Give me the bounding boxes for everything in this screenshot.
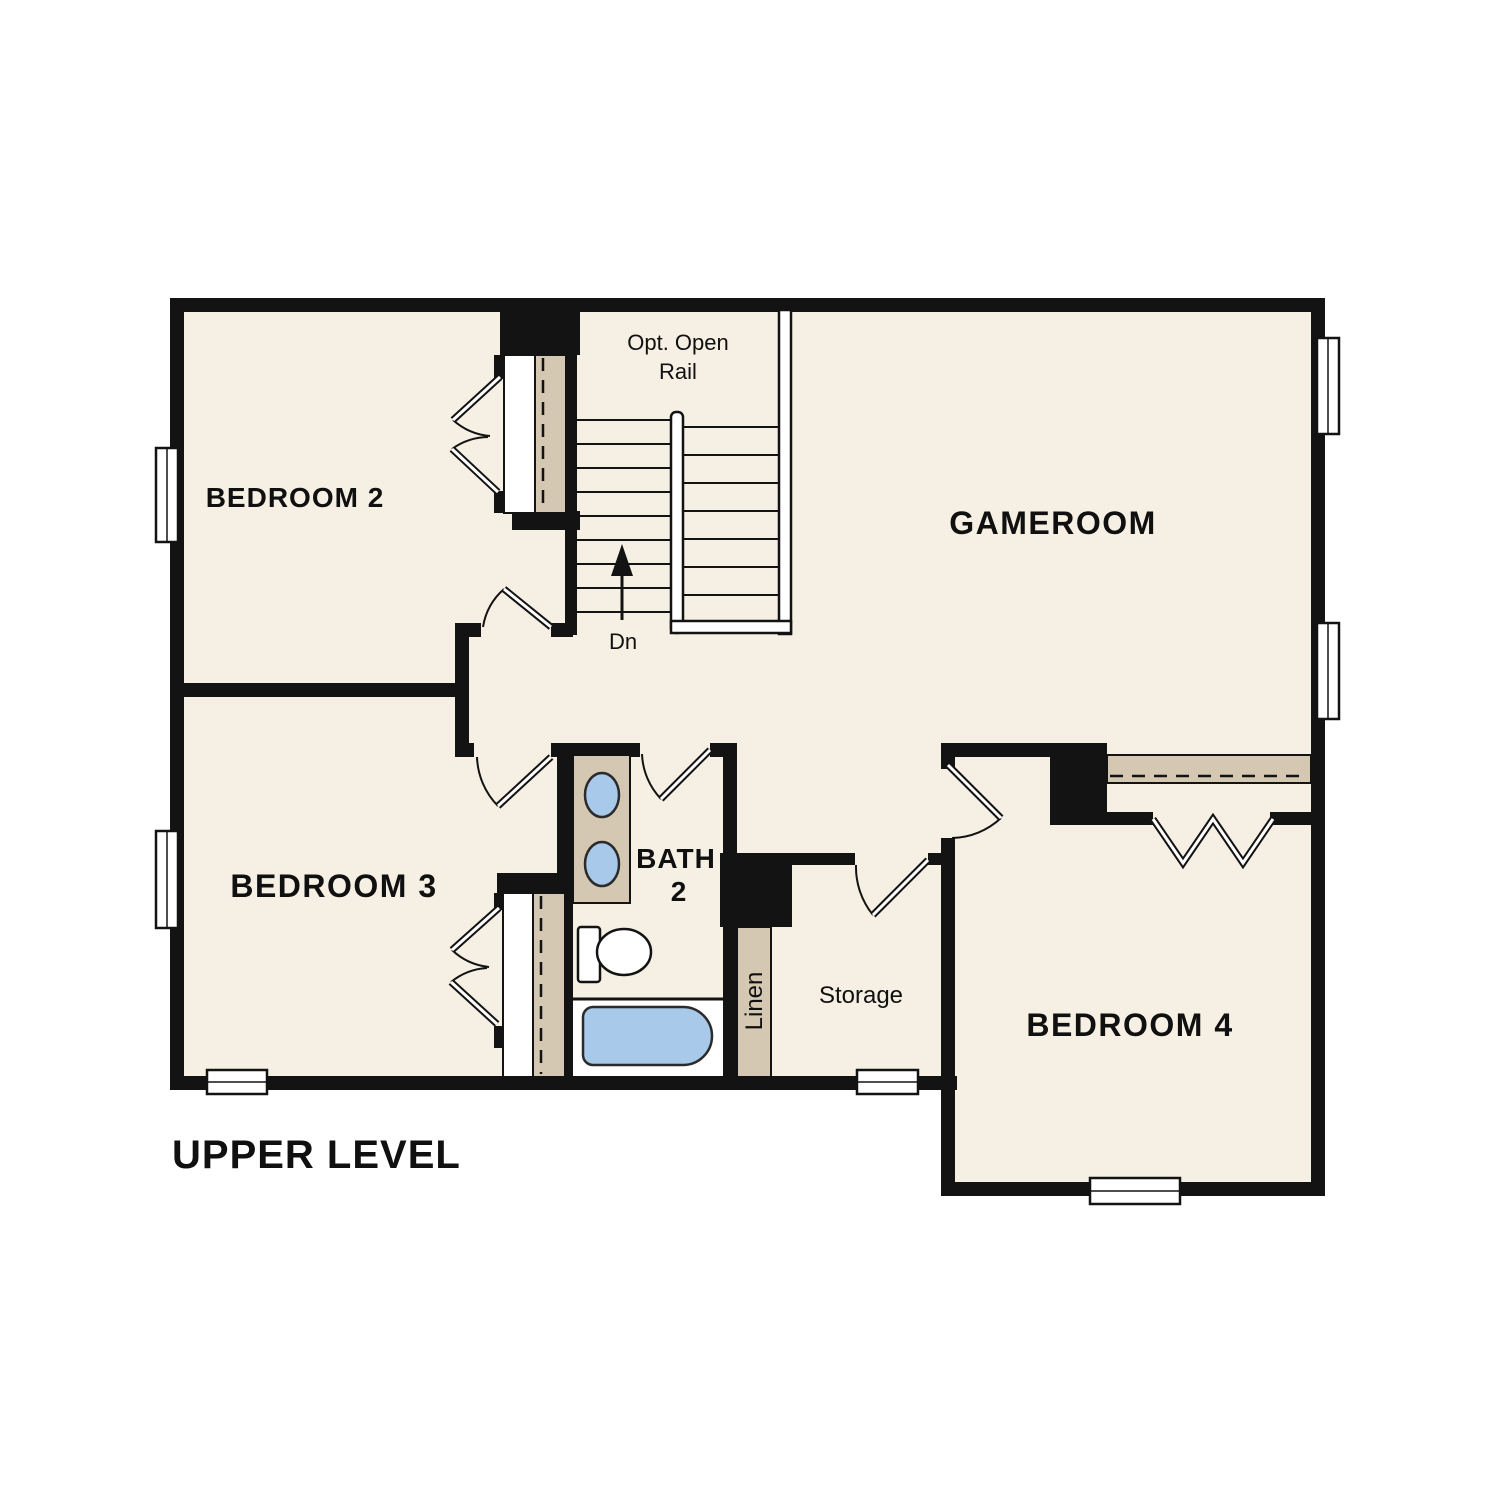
bedroom3-left-window: [156, 831, 178, 928]
stair-note-line2: Rail: [659, 359, 697, 384]
gameroom-label: GAMEROOM: [949, 505, 1157, 541]
wall-bedroom3-closet-top-chunk: [497, 873, 575, 893]
wall-exterior-bottom-main: [170, 1076, 957, 1090]
wall-bedroom3-door-left-jamb: [455, 743, 474, 757]
bathtub: [583, 1007, 712, 1065]
wall-gameroom-bottom: [941, 743, 1051, 757]
bedroom4-window: [1090, 1178, 1180, 1204]
wall-bedroom4-closet-face-right: [1270, 812, 1311, 825]
wall-stair-top-chunk: [500, 298, 580, 355]
floor-plan-drawing: BEDROOM 2 BEDROOM 3 BEDROOM 4 GAMEROOM B…: [0, 0, 1500, 1500]
wall-bedroom4-left-lower: [941, 1076, 955, 1196]
wall-storage-door-stub: [928, 853, 941, 865]
bath-sink-bottom: [585, 842, 619, 886]
floor-plan-page: BEDROOM 2 BEDROOM 3 BEDROOM 4 GAMEROOM B…: [0, 0, 1500, 1500]
bedroom4-closet-shelf: [1107, 755, 1311, 783]
storage-label: Storage: [819, 982, 903, 1009]
bedroom3-label: BEDROOM 3: [230, 868, 437, 904]
bedroom2-label: BEDROOM 2: [206, 482, 385, 513]
storage-window: [857, 1070, 918, 1094]
bedroom2-closet-shelf: [535, 355, 566, 513]
stair-center-rail: [671, 412, 683, 633]
bedroom3-bottom-window: [207, 1070, 267, 1094]
level-title: UPPER LEVEL: [172, 1133, 461, 1177]
stair-down-label: Dn: [609, 629, 637, 654]
bath-sink-top: [585, 773, 619, 817]
stair-bottom-rail: [671, 621, 791, 633]
bath2-label-line2: 2: [671, 876, 688, 907]
bedroom2-window: [156, 448, 178, 542]
wall-bedroom2-bottom-left-jamb: [455, 623, 481, 637]
wall-linen-chunk: [720, 853, 792, 927]
linen-label: Linen: [741, 972, 768, 1031]
bedroom4-label: BEDROOM 4: [1026, 1007, 1233, 1043]
stair-right-rail: [779, 310, 791, 634]
wall-storage-top: [792, 853, 855, 865]
gameroom-lower-window: [1317, 623, 1339, 719]
wall-bedroom2-bedroom3-divider: [170, 683, 467, 697]
bath2-label-line1: BATH: [636, 843, 716, 874]
gameroom-upper-window: [1317, 338, 1339, 434]
wall-bedroom4-left: [941, 838, 955, 1078]
wall-exterior-top: [170, 298, 1325, 312]
stair-note-line1: Opt. Open: [627, 330, 729, 355]
bedroom3-closet-shelf: [533, 893, 565, 1077]
wall-gameroom-bottom-chunk: [1050, 743, 1107, 825]
toilet-bowl: [597, 929, 651, 975]
wall-hall-vertical: [455, 623, 469, 757]
wall-bedroom4-closet-face-left: [1107, 812, 1153, 825]
